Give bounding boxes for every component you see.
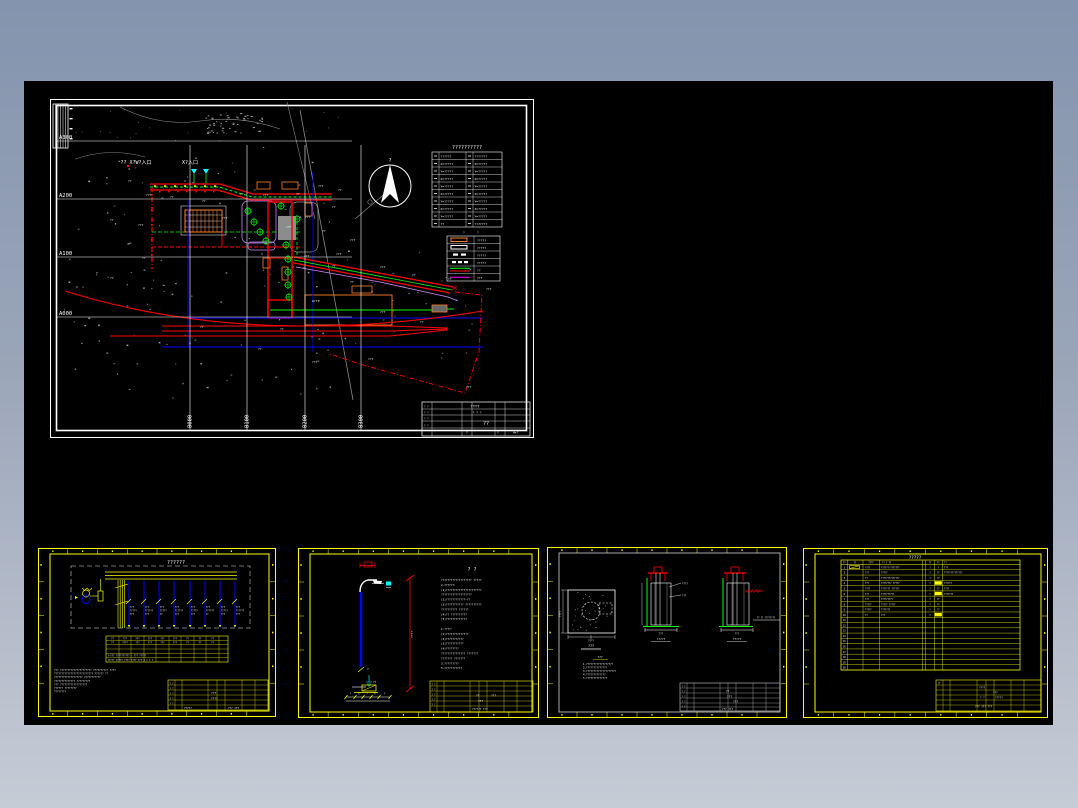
micro-text: 3.????????? [441, 661, 459, 665]
plan-label: ??? [138, 223, 144, 227]
micro-text: ??? [135, 642, 140, 645]
sheet-power-distribution[interactable]: ?????? ?????????????????????????????????… [38, 548, 276, 717]
micro-text: ? [477, 231, 479, 235]
grid-col-label: B000 [188, 415, 194, 428]
micro-text: ????? [477, 246, 486, 250]
grid-col-label: B200 [303, 415, 309, 428]
micro-text: ? ? [432, 698, 437, 701]
row-number: 18 [843, 656, 846, 659]
svg-text:???: ??? [682, 595, 687, 598]
micro-text: ? [929, 598, 931, 601]
micro-text: (3)??????????? ?????????? [441, 603, 482, 607]
micro-text: (4)???????? [441, 647, 459, 651]
micro-text: ????? [477, 261, 486, 265]
svg-text:????: ???? [682, 583, 688, 586]
micro-text: 5.??????????? [441, 666, 462, 670]
plan-label: U??? [312, 299, 319, 303]
row-number: 20 [843, 667, 846, 670]
row-number: 8 [844, 603, 846, 606]
plan-label: ??? [263, 193, 269, 197]
sheet-streetlight-detail[interactable]: ? ? ? ?? ???? ??????? ???????????? [298, 548, 539, 718]
material-table: ?????????? ? ????????1??????????-???????… [841, 560, 1020, 670]
stamp-icon: ? [938, 682, 940, 686]
grid-row-label: A300 [59, 135, 72, 141]
micro-text: X=????? [475, 192, 488, 196]
busbar [105, 572, 237, 579]
micro-text: ??? [173, 637, 178, 640]
micro-text: ?—??? ?????????? — ??? ????? [108, 654, 147, 657]
micro-text: ? ? [170, 692, 175, 695]
micro-text: ?????? ???????? [54, 686, 77, 690]
micro-text: ? [929, 577, 931, 580]
micro-text: ????? [865, 609, 872, 612]
micro-text: ?? [929, 562, 932, 565]
plan-label: ??? [286, 225, 292, 229]
micro-text: ????? ????? [881, 603, 896, 606]
svg-text:? ?: ? ? [424, 405, 429, 409]
plan-label: ?? [280, 327, 284, 331]
micro-text: X=????? [475, 207, 488, 211]
row-number: 6 [844, 593, 846, 596]
micro-text: ??? [175, 613, 180, 616]
micro-text: ? [938, 566, 940, 569]
micro-text: ? ? [170, 687, 175, 690]
micro-text: ?? [843, 562, 846, 565]
plan-label: ??? [350, 238, 356, 242]
plan-label: ?? [350, 280, 354, 284]
sheet-title: ? ? [467, 567, 476, 573]
micro-text: ??? [865, 582, 870, 585]
micro-text: ?????????????? [944, 572, 963, 575]
row-number: 15 [843, 640, 846, 643]
micro-text: ? ? [170, 682, 175, 685]
figure-label: ????? [733, 637, 742, 641]
row-number: 9 [844, 609, 846, 612]
micro-text: ? ? [432, 688, 437, 691]
micro-text: (2)??????????? [441, 637, 464, 641]
highlight-cell [935, 613, 942, 617]
micro-text: ?? [937, 562, 940, 565]
micro-text: ? [929, 587, 931, 590]
coord-table-title: ?????????? [452, 145, 482, 151]
micro-text: ????? ????? ???? ???? ??? ? ? ? ? [108, 659, 154, 662]
plan-label: ??? [146, 193, 152, 197]
micro-text: ?? [186, 642, 189, 645]
lamp-icon [386, 582, 391, 586]
stairs-block [185, 210, 222, 232]
micro-text: ? ? [682, 685, 687, 688]
north-needle [381, 165, 399, 203]
micro-text: ???? [979, 686, 986, 690]
micro-text: ????? [865, 603, 872, 606]
north-arrow: ? [368, 158, 411, 207]
micro-text: ??? [221, 613, 226, 616]
road-diagonal [294, 257, 458, 301]
grid-row-label: A100 [59, 251, 72, 257]
notes: ??????????????????? ?????2.??????:(1)???… [441, 578, 482, 670]
micro-text: X=????? [441, 192, 454, 196]
parcel-boundary [330, 292, 482, 393]
plan-label: ??? [380, 265, 386, 269]
coordinate-table: ?????????????X=?????X=?????Y=?????Y=????… [432, 152, 502, 227]
plan-label: ?? [412, 273, 416, 277]
micro-text: ? ? [682, 700, 687, 703]
micro-text: ??? [733, 700, 738, 704]
micro-text: ?? [111, 642, 114, 645]
micro-text: ??? [865, 572, 870, 575]
title-block: ? ?? ?? ?? ?? ??????????????? ??? [430, 681, 533, 712]
plan-label: ?? [240, 192, 244, 196]
micro-text: ??????? [881, 609, 891, 612]
entrance-label-1: ?? X?W?入口 [120, 160, 151, 166]
micro-text: ?????????????????????????? ?????? ?? [54, 672, 109, 676]
micro-text: ??? [160, 637, 165, 640]
micro-text: ???????? [54, 690, 67, 694]
micro-text: ? ? [980, 696, 985, 700]
cad-viewer-background: { "app": { "background_top": "#8494ae", … [0, 0, 1078, 808]
micro-text: ??????? [475, 154, 488, 158]
micro-text: ? ? [682, 695, 687, 698]
figure-label: ????? [657, 637, 666, 641]
micro-text: ??????? [475, 222, 488, 226]
micro-text: ?? [937, 587, 940, 590]
micro-text: ?????? [944, 582, 953, 585]
micro-text: ? [463, 231, 465, 235]
micro-text: ? ? [432, 693, 437, 696]
title-block-stamp: ?? [483, 421, 489, 427]
north-label: ? [388, 158, 391, 164]
micro-text: ?????????????? [881, 577, 900, 580]
svg-text:?: ? [497, 431, 499, 435]
micro-text: ? [929, 614, 931, 617]
micro-text: ??? [211, 691, 217, 695]
svg-text:???: ??? [659, 633, 664, 636]
micro-text: X=????? [475, 177, 488, 181]
plan-label: ??? [305, 215, 311, 219]
title-block: ? ?? ?? ?? ?? ???????????? ??? [680, 683, 780, 711]
micro-text: ??????????????? ??????? [441, 652, 479, 656]
micro-text: ?? [160, 613, 163, 616]
micro-text: ? [929, 572, 931, 575]
micro-text: Y=????? [475, 184, 488, 188]
drawing-canvas[interactable]: ? ?????????? ?????????????X=?????X=?????… [24, 81, 1053, 725]
entrance-arrow-icon [191, 169, 197, 174]
row-number: 12 [843, 624, 846, 627]
plan-label: ?? [200, 325, 204, 329]
micro-text: ?? [476, 694, 480, 698]
micro-text: ??????? [944, 593, 954, 596]
entrance-arrow-icon [203, 169, 209, 174]
row-number: 17 [843, 651, 846, 654]
row-number: 1 [844, 566, 846, 569]
micro-text: ???????? ????? [881, 582, 900, 585]
micro-text: ????? [477, 238, 486, 242]
micro-text: ? ? [682, 705, 687, 708]
micro-text: 3.???????????????????? [583, 669, 617, 673]
svg-text:???: ??? [735, 633, 740, 636]
micro-text: ? ? [170, 702, 175, 705]
micro-text: Y=????? [475, 214, 488, 218]
row-number: 14 [843, 635, 846, 638]
svg-text:????: ???? [410, 631, 414, 638]
plan-label: ?? [420, 320, 424, 324]
micro-text: ?????????? [881, 593, 895, 596]
svg-text:? ?: ? ? [424, 417, 429, 421]
sheet-foundation-detail[interactable]: ???? ???? ??? ???? ??? ??? ????? [547, 547, 787, 718]
grid-row-label: A000 [59, 311, 72, 317]
micro-text: ? [384, 692, 386, 696]
plan-label: ?? [338, 188, 342, 192]
micro-text: 1.?????????????????? [583, 662, 614, 666]
sheet-frame [39, 549, 276, 717]
micro-text: ? ? [170, 697, 175, 700]
svg-text:????: ???? [588, 640, 594, 643]
micro-text: ??? [491, 694, 496, 698]
micro-text: ??? [865, 598, 870, 601]
plan-label: ??? [304, 254, 310, 258]
micro-text: ? [929, 593, 931, 596]
plan-label: ?? [296, 192, 300, 196]
micro-text: ???? [211, 696, 218, 700]
micro-text: ????????? [881, 598, 894, 601]
micro-text: ?? [865, 614, 868, 617]
row-number: 5 [844, 587, 846, 590]
micro-text: ?? [865, 577, 868, 580]
svg-text:?: ? [367, 667, 369, 671]
micro-text: ??? [993, 690, 998, 694]
sheet-title: ?????? [167, 560, 185, 566]
micro-text: ? [929, 609, 931, 612]
small-structures [257, 182, 447, 325]
plan-label: ??? [466, 385, 472, 389]
plan-label: ??? [222, 216, 228, 220]
svg-text:????: ???? [560, 611, 563, 617]
micro-text: ? [350, 692, 352, 696]
micro-text: ? ? [432, 683, 437, 686]
micro-text: ??? [145, 613, 150, 616]
micro-text: ??????????????????? ????? [441, 578, 482, 582]
micro-text: (4)?? ?????????? [441, 612, 467, 616]
micro-text: ??? [477, 276, 483, 280]
micro-text: ????? [184, 706, 192, 710]
micro-text: 5.?????????????? [583, 676, 608, 680]
micro-text: ????? [995, 696, 1003, 700]
ground-symbol-icon [366, 675, 372, 686]
plan-label: ??? [312, 360, 318, 364]
site-drawing[interactable]: ?? X?W?入口 X?入口 [65, 160, 483, 393]
plan-label: ?? [128, 179, 132, 183]
micro-text: ??? [191, 613, 196, 616]
row-number: 7 [844, 598, 846, 601]
row-number: 11 [843, 619, 846, 622]
micro-text: X=????? [441, 207, 454, 211]
micro-text: ?? [357, 692, 361, 696]
plan-label: ?? [202, 199, 206, 203]
micro-text: ??? [148, 637, 153, 640]
plan-label: ?? [110, 276, 114, 280]
title-block-text: ? ? ? [472, 411, 481, 415]
svg-text:?? ?? ????????: ?? ?? ???????? [757, 617, 776, 620]
row-number: 19 [843, 661, 846, 664]
micro-text: ??? ????????????????????? ?????????? ???… [54, 668, 116, 672]
plan-label: ?? [448, 277, 452, 281]
plan-label: ?? [170, 195, 174, 199]
micro-text: ????? [477, 253, 486, 257]
micro-text: ??????? ??????? [441, 656, 466, 660]
micro-text: ? [929, 566, 931, 569]
micro-text: (5)????????????? [441, 617, 467, 621]
micro-text: Y=????? [441, 214, 454, 218]
micro-text: ?????? [441, 154, 452, 158]
micro-text: ??? [123, 637, 128, 640]
title-block: ? ?? ?? ?? ?? ???????????????? ??? [168, 680, 268, 710]
micro-text: ?? [186, 637, 189, 640]
plan-label: ?? [110, 218, 114, 222]
contour-lines [75, 102, 388, 400]
grid-col-label: B300 [359, 415, 365, 428]
micro-text: ?????????? ?????? [441, 607, 469, 611]
notes: ??? 1.??????????????????2.??????????????… [583, 655, 617, 680]
micro-text: ?? [199, 642, 202, 645]
plan-label: ??? [336, 252, 342, 256]
micro-text: ??????? ?????? [881, 587, 900, 590]
micro-text: ? [929, 582, 931, 585]
micro-text: ??? ??? ??? [975, 705, 993, 709]
row-number: 16 [843, 646, 846, 649]
micro-text: (2)????????????—?? [441, 598, 471, 602]
micro-text: Y=????? [441, 184, 454, 188]
micro-text: X=????? [441, 177, 454, 181]
micro-text: ? ? [682, 690, 687, 693]
micro-text: ?? [373, 692, 377, 696]
micro-text: ?? [726, 689, 730, 693]
micro-text: ? [929, 603, 931, 606]
micro-text: ??? [130, 613, 135, 616]
micro-text: ?? [854, 562, 857, 565]
micro-text: ??? [478, 699, 483, 703]
micro-text: ????? [881, 572, 888, 575]
micro-text: ??????????????????? ??????????? [54, 675, 101, 679]
svg-text:H×?: H×? [513, 431, 519, 435]
micro-text: ??? [135, 637, 140, 640]
fig-plan-view: ???? ???? ??? [560, 590, 616, 650]
micro-text: ?? [199, 637, 202, 640]
micro-text: Y=????? [441, 199, 454, 203]
micro-text: Y=????? [475, 169, 488, 173]
survey-grid: A300A200A100A000B000B100B200B300 [57, 135, 365, 431]
svg-text:???: ??? [597, 655, 603, 659]
lamp-pole-figure: ? ?? ???? [346, 562, 414, 701]
micro-text: ???? [865, 587, 871, 590]
micro-text: ??? ??? [722, 707, 733, 711]
micro-text: ?????????????? ????????? [54, 679, 91, 683]
micro-text: ??????-??????? [881, 566, 900, 569]
micro-text: ??????????????????? [441, 593, 472, 597]
micro-text: ?? [111, 637, 114, 640]
feeder-circuits: ????????????????????????????????????????… [126, 581, 245, 628]
row-number: 10 [843, 614, 846, 617]
micro-text: ?? [937, 572, 940, 575]
micro-text: ??? ?????????????????? [54, 682, 88, 686]
micro-text: ??? [944, 566, 949, 569]
micro-text: ??? [160, 642, 165, 645]
svg-text:?: ? [466, 431, 468, 435]
legend: ??????????????????????????? [447, 231, 500, 282]
plan-label: ?? [322, 229, 326, 233]
micro-text: ?? [441, 222, 445, 226]
micro-text: ?? [937, 598, 940, 601]
plan-label: ??? [368, 357, 374, 361]
sheet-title: ????? [909, 555, 922, 560]
micro-text: ??? [148, 642, 153, 645]
title-block: ????????? ????????? ??? ??? [936, 680, 1041, 711]
plan-label: ?? [332, 264, 336, 268]
micro-text: ???? [868, 562, 874, 565]
highlight-cell [935, 592, 942, 596]
micro-text: ?? [937, 603, 940, 606]
plan-label: ?? [258, 347, 262, 351]
micro-text: ?? [211, 642, 214, 645]
micro-text: ??? [173, 642, 178, 645]
micro-text: ??? [727, 694, 732, 698]
row-number: 13 [843, 630, 846, 633]
plan-label: ??? [486, 287, 492, 291]
micro-text: X=????? [475, 162, 488, 166]
micro-text: Y=????? [475, 199, 488, 203]
circuit-table: ????????????????????????????????????????… [106, 636, 228, 662]
svg-text:? ?: ? ? [424, 411, 429, 415]
micro-text: 2.??????: [441, 583, 456, 587]
micro-text: (1)?????????????? [441, 632, 469, 636]
sheet-frame [299, 549, 539, 718]
micro-text: ?? [937, 577, 940, 580]
figure-label: ??? [588, 644, 594, 648]
transformer-symbol [75, 579, 103, 604]
micro-text: ?? [211, 637, 214, 640]
sheet-site-plan[interactable]: ? ?????????? ?????????????X=?????X=?????… [50, 99, 534, 438]
micro-text: ?????? ??? [472, 707, 488, 711]
row-number: 4 [844, 582, 846, 585]
micro-text: ???? [944, 587, 950, 590]
micro-text: Y=????? [441, 169, 454, 173]
micro-text: (3)??????????? [441, 642, 464, 646]
micro-text: X=????? [441, 162, 454, 166]
plan-label: ??? [380, 310, 386, 314]
micro-text: ???? [865, 566, 871, 569]
micro-text: ?? [206, 613, 209, 616]
notes: ??? ????????????????????? ?????????? ???… [54, 668, 116, 694]
micro-text: ???? [122, 642, 128, 645]
road-hatch [151, 185, 216, 256]
micro-text: ?? ? ?? [882, 562, 892, 565]
fig-elevation-b: ???? ??? ??? ????? [642, 567, 688, 642]
plan-label: ?? [142, 256, 146, 260]
micro-text: (1)?????????????????????? [441, 588, 482, 592]
grid-row-label: A200 [59, 193, 72, 199]
sheet-material-list[interactable]: ????? ?????????? ? ????????1??????????-?… [803, 548, 1048, 718]
micro-text: ??? [236, 613, 241, 616]
plan-label: ??? [318, 184, 324, 188]
micro-text: ??? [881, 614, 886, 617]
micro-text: ?? [944, 562, 947, 565]
grid-col-label: B100 [245, 415, 251, 428]
plan-label: ?? [332, 205, 336, 209]
fig-elevation-c: ?? ?? ???????? ??? ????? [719, 567, 780, 642]
micro-text: ?? [937, 609, 940, 612]
title-block-text: TTTT [471, 405, 480, 409]
highlight-cell [935, 581, 942, 585]
row-number: 3 [844, 577, 846, 580]
